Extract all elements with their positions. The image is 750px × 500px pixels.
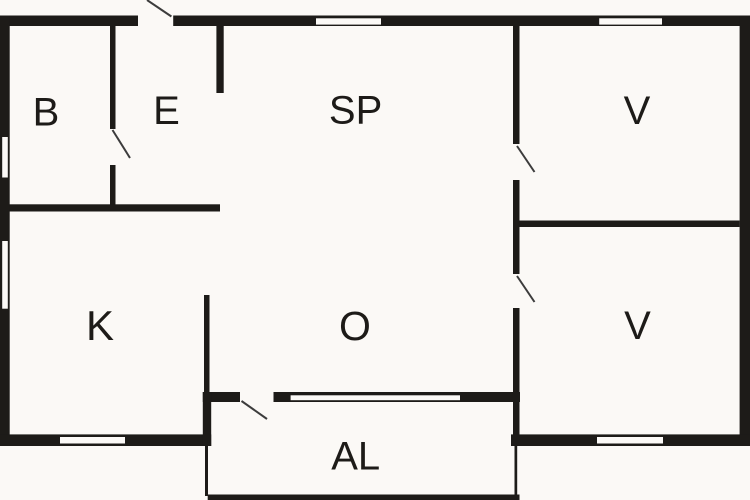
svg-text:V: V (624, 89, 651, 133)
svg-text:SP: SP (329, 89, 382, 133)
svg-text:B: B (33, 91, 60, 135)
svg-text:AL: AL (331, 435, 380, 479)
svg-text:E: E (153, 89, 180, 133)
svg-text:V: V (624, 304, 651, 348)
svg-text:O: O (339, 303, 371, 349)
svg-text:K: K (86, 302, 114, 349)
